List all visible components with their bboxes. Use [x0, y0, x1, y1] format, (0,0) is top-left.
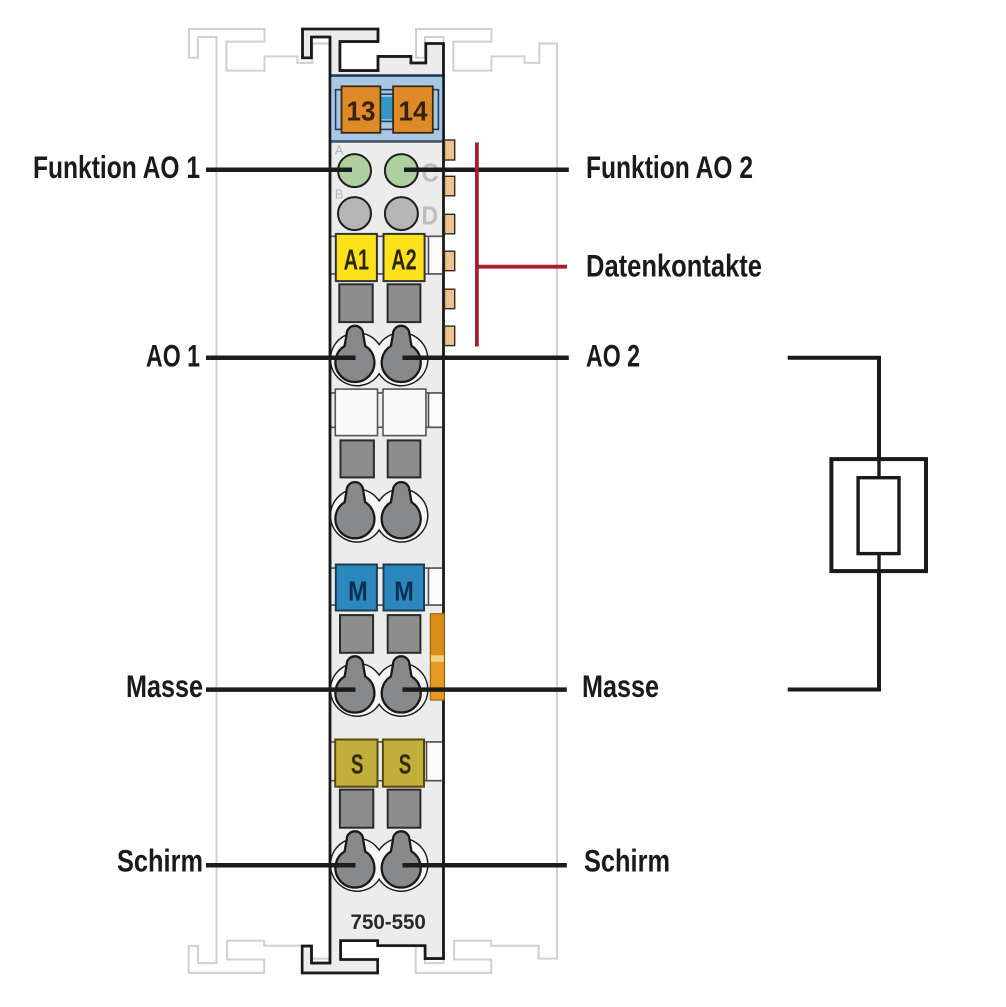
svg-text:Datenkontakte: Datenkontakte: [586, 248, 762, 284]
svg-text:Funktion AO 1: Funktion AO 1: [33, 149, 200, 185]
svg-text:Schirm: Schirm: [117, 842, 203, 878]
svg-text:M: M: [394, 575, 414, 606]
svg-text:A2: A2: [391, 245, 416, 277]
svg-text:S: S: [351, 749, 364, 780]
svg-text:750-550: 750-550: [351, 911, 426, 934]
svg-text:Schirm: Schirm: [584, 842, 670, 878]
svg-text:13: 13: [347, 96, 376, 127]
svg-text:B: B: [335, 187, 344, 202]
svg-text:AO 2: AO 2: [586, 338, 640, 374]
svg-text:Funktion AO 2: Funktion AO 2: [586, 149, 753, 185]
svg-text:AO 1: AO 1: [146, 338, 200, 374]
svg-text:A1: A1: [344, 245, 369, 277]
svg-text:D: D: [422, 200, 439, 230]
svg-text:Masse: Masse: [582, 668, 659, 704]
svg-text:14: 14: [399, 96, 428, 127]
svg-text:S: S: [399, 749, 412, 780]
svg-text:Masse: Masse: [126, 668, 203, 704]
svg-text:A: A: [335, 143, 344, 158]
svg-text:C: C: [422, 158, 439, 188]
svg-text:M: M: [348, 575, 368, 606]
